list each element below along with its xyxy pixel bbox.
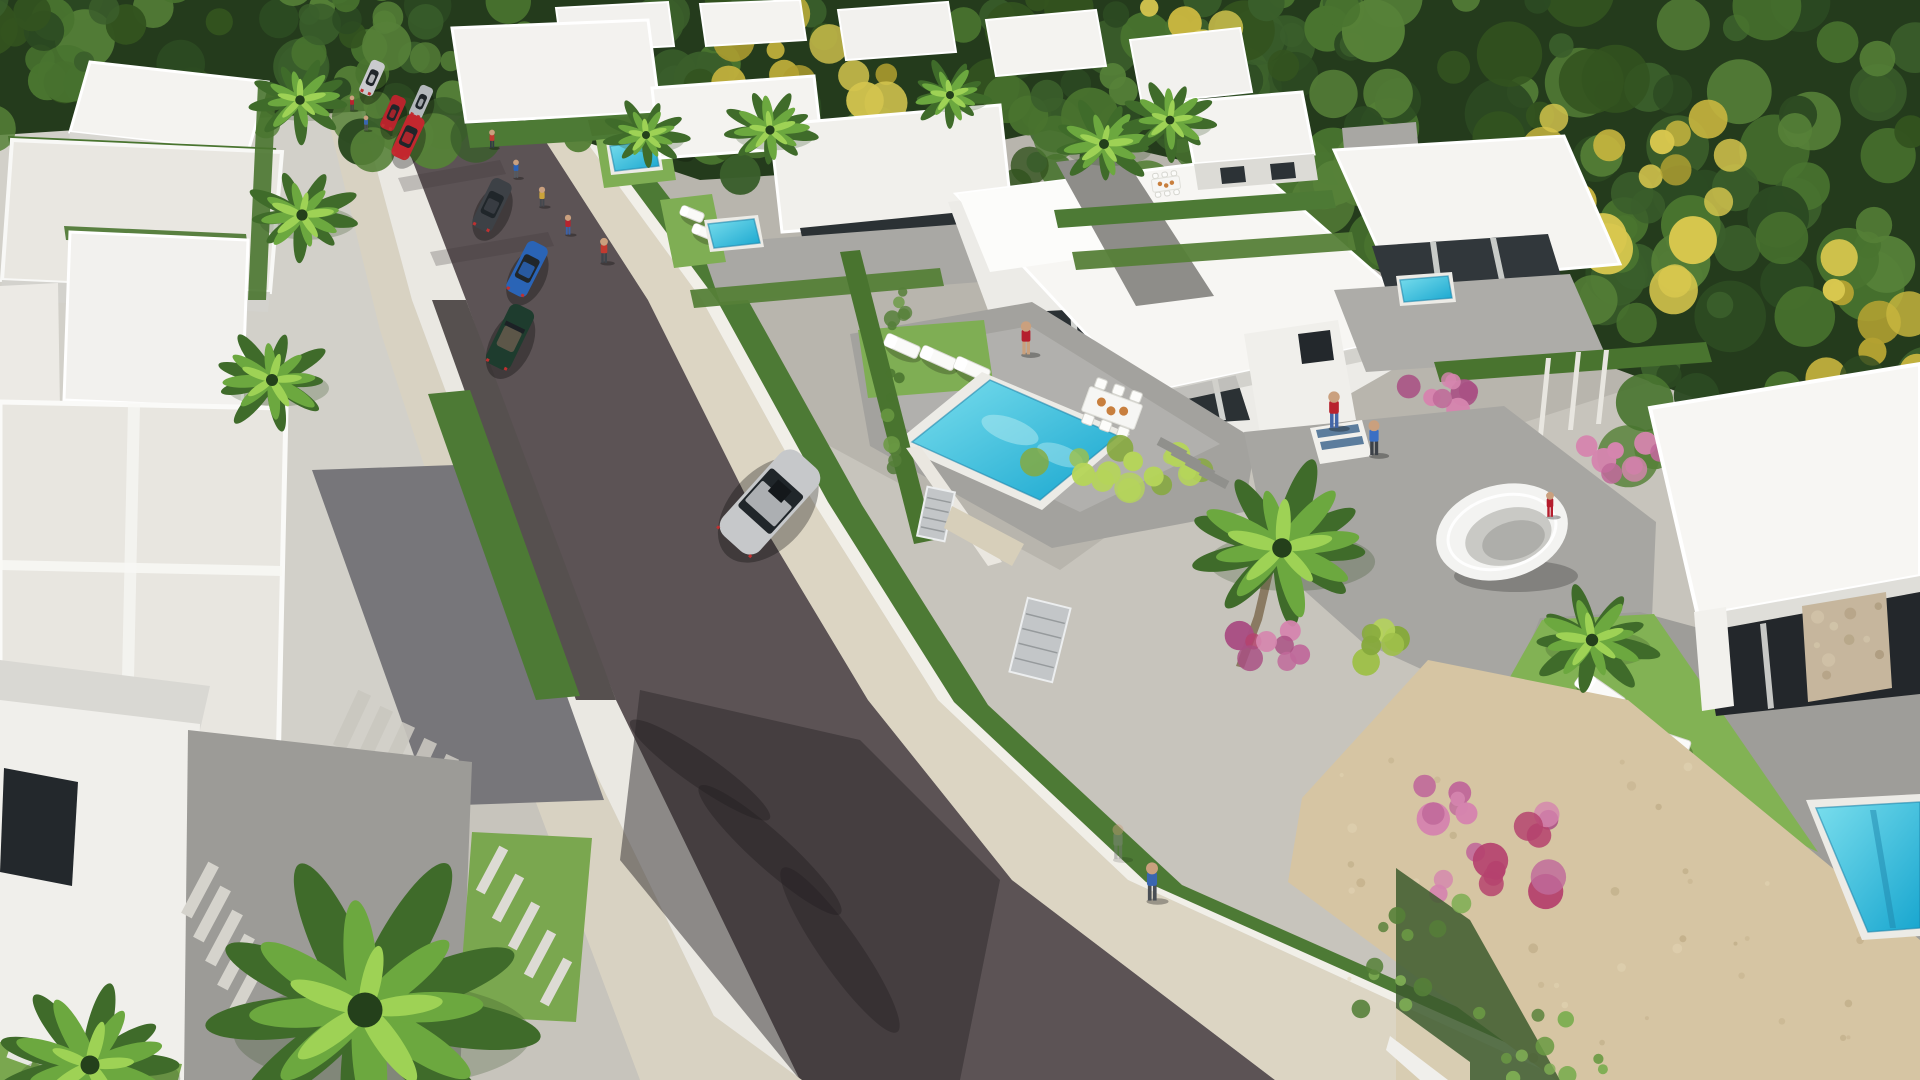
back-row-villa-roof xyxy=(986,10,1106,76)
r1-window xyxy=(1220,166,1246,184)
back-row-villa-roof xyxy=(700,0,806,46)
villa-r2-pool xyxy=(1396,272,1456,306)
back-row-villa-roof xyxy=(838,2,956,60)
aerial-render-stage xyxy=(0,0,1920,1080)
left-villa-roof xyxy=(64,232,248,408)
r1-window xyxy=(1270,162,1296,180)
back-row-villa-roof xyxy=(1130,28,1252,104)
aerial-render-svg xyxy=(0,0,1920,1080)
terrace-chairs xyxy=(1150,170,1181,198)
villa-r3-roof xyxy=(1650,364,1920,616)
c2-pool xyxy=(704,215,764,252)
bottom-villa-window xyxy=(0,768,78,886)
left-villa-roof xyxy=(0,283,60,414)
wing-window xyxy=(1298,330,1334,364)
